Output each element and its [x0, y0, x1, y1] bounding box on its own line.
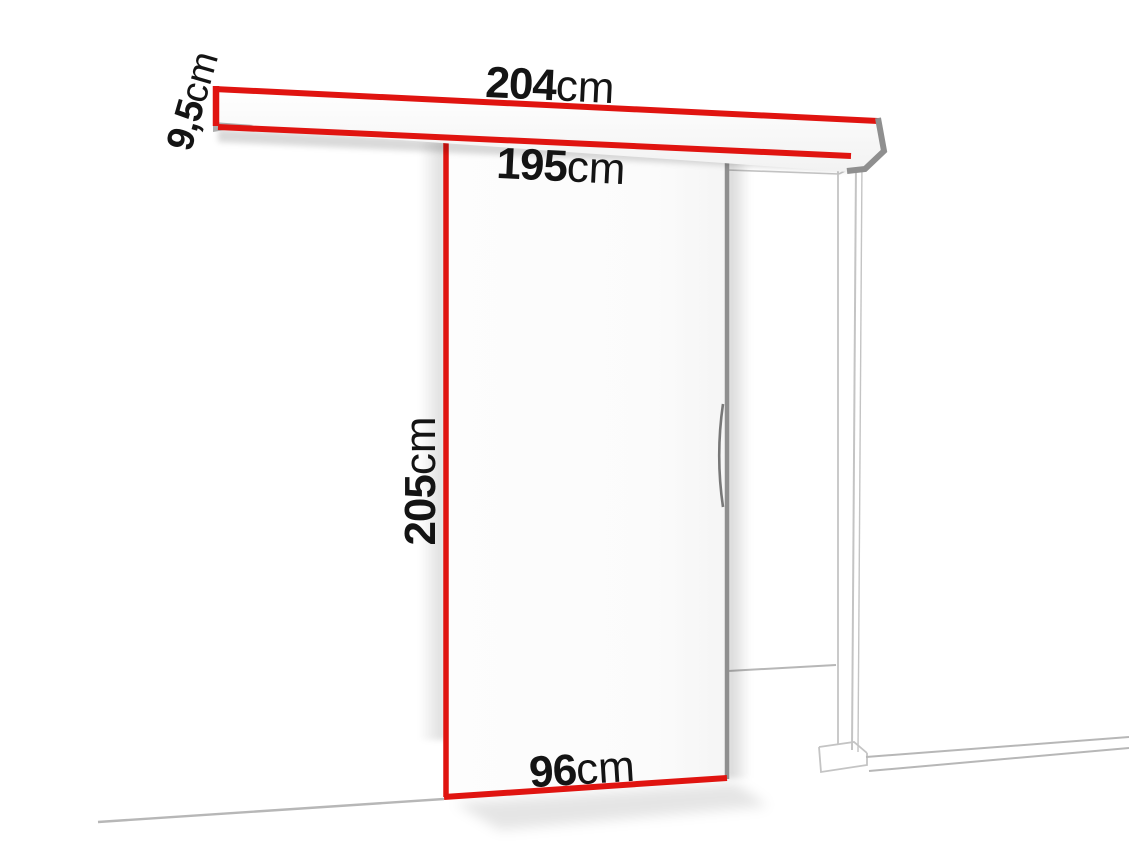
dimension-rail-length-unit: cm [555, 61, 616, 113]
dimension-door-width-unit: cm [575, 742, 637, 795]
door-face [445, 130, 727, 798]
sliding-door-panel [444, 130, 727, 798]
dimension-rail-length: 204cm [484, 61, 615, 111]
baseboard-top-line [866, 737, 1129, 757]
frame-post-outer-edge [852, 163, 856, 750]
wall-shadow-right-of-door [727, 152, 751, 778]
dimension-door-width: 96cm [528, 745, 636, 796]
dimension-clear-width-unit: cm [566, 142, 627, 194]
door-frame [700, 157, 1129, 772]
baseboard-bottom-line [869, 748, 1129, 771]
dimension-rail-length-value: 204 [484, 58, 557, 110]
diagram-canvas: 204cm 195cm 9,5cm 205cm 96cm [0, 0, 1129, 847]
dimension-clear-width-value: 195 [495, 139, 568, 191]
dimension-clear-width: 195cm [495, 142, 626, 192]
dimension-door-height: 205cm [399, 416, 443, 545]
dimension-door-height-unit: cm [396, 416, 445, 475]
frame-plinth [819, 742, 867, 772]
dimension-door-width-value: 96 [528, 745, 578, 797]
frame-post-outer-highlight [858, 160, 862, 752]
floor-line-left [98, 799, 444, 822]
dimension-door-height-value: 205 [396, 475, 445, 545]
